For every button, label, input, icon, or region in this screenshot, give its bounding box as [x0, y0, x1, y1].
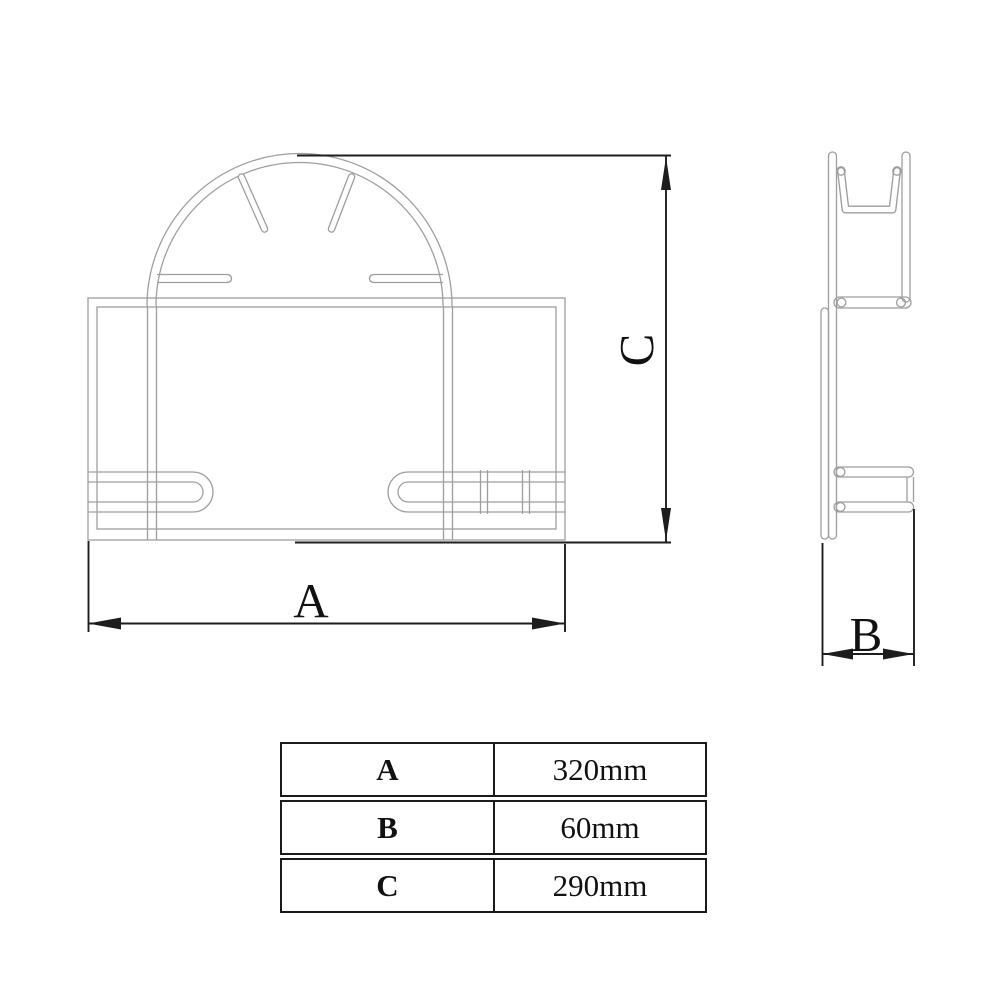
side-top-rail — [834, 297, 911, 308]
dim-arrow-right — [532, 618, 565, 630]
dim-arrow-left — [88, 618, 121, 630]
dim-label-b: B — [850, 607, 883, 662]
dimension-c: C — [295, 156, 671, 543]
dim-arrow-left — [823, 649, 854, 660]
row-value: 290mm — [495, 860, 705, 911]
side-front-wire — [902, 152, 910, 302]
arch-spokes — [242, 177, 352, 229]
slot-cross-wires — [481, 470, 530, 514]
table-row: A 320mm — [280, 742, 707, 797]
lower-left-slot — [88, 472, 213, 512]
front-view — [88, 154, 565, 541]
side-wall-plate — [821, 308, 829, 539]
dim-label-a: A — [293, 573, 329, 628]
side-lower-bars — [834, 467, 914, 512]
dim-label-c: C — [609, 334, 664, 367]
dim-arrow-down — [661, 508, 671, 541]
side-top-basket — [837, 167, 901, 210]
lower-right-slot — [388, 472, 565, 512]
dimensions-table: A 320mm B 60mm C 290mm — [280, 742, 707, 916]
row-label: B — [282, 802, 495, 853]
row-value: 320mm — [495, 744, 705, 795]
dimension-a: A — [88, 541, 565, 632]
frame-outer-rect — [88, 298, 565, 540]
dim-arrow-up — [661, 157, 671, 190]
row-value: 60mm — [495, 802, 705, 853]
dim-arrow-right — [883, 649, 914, 660]
technical-drawing-page: A C B A 320mm B 60mm — [0, 0, 1000, 1000]
side-view — [821, 152, 914, 539]
table-row: C 290mm — [280, 858, 707, 913]
upper-right-slot — [370, 275, 444, 283]
arch-inner — [156, 162, 443, 306]
row-label: C — [282, 860, 495, 911]
upper-left-slot — [157, 275, 232, 283]
side-arch-wire — [829, 152, 837, 539]
row-label: A — [282, 744, 495, 795]
table-row: B 60mm — [280, 800, 707, 855]
